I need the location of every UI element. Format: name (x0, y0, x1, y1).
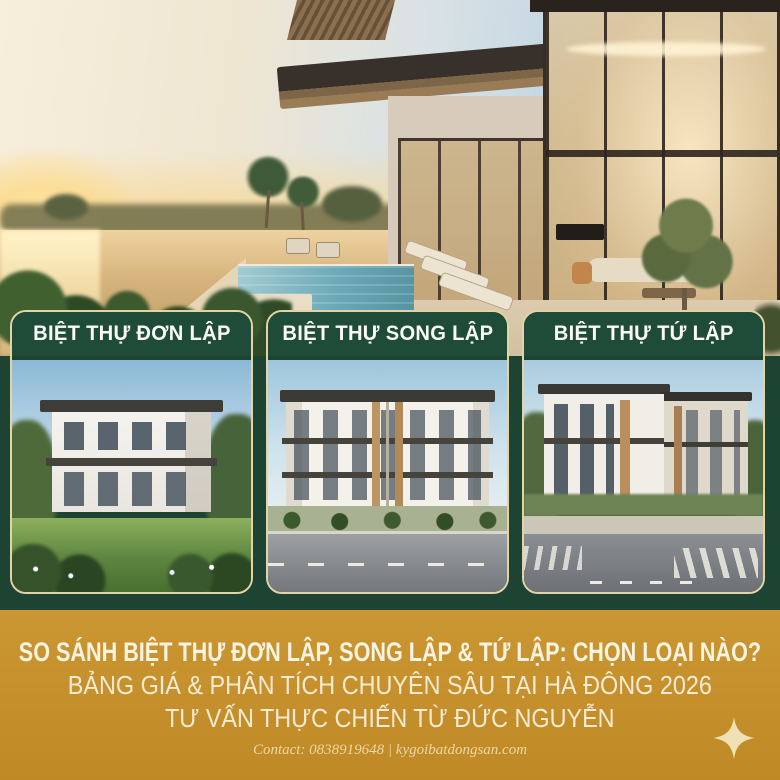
card-biet-thu-song-lap: BIỆT THỰ SONG LẬP (266, 310, 509, 594)
floor-slab (544, 438, 664, 444)
interior-armchair (572, 262, 592, 284)
card-biet-thu-tu-lap: BIỆT THỰ TỨ LẬP (522, 310, 765, 594)
pool-chair (286, 238, 310, 254)
card-photo-quad-villa (524, 360, 763, 592)
roof-slats (287, 0, 395, 40)
pool-chair (316, 242, 340, 258)
wood-accent (372, 402, 380, 508)
banner-title: SO SÁNH BIỆT THỰ ĐƠN LẬP, SONG LẬP & TỨ … (19, 636, 761, 669)
crosswalk (524, 546, 582, 570)
floor-slab (46, 458, 217, 466)
interior-ceiling-light (566, 42, 766, 56)
villa-windows (554, 404, 614, 498)
card-photo-duplex-villa (268, 360, 507, 592)
road-markings (590, 581, 700, 584)
road-markings (268, 563, 507, 566)
interior-tv (556, 224, 604, 240)
hero-photo (0, 0, 780, 356)
villa-windows (64, 422, 199, 450)
crosswalk (674, 548, 758, 578)
villa-roof (660, 392, 752, 401)
tree-blob (44, 194, 88, 220)
villa-windows (686, 410, 740, 496)
curb (268, 531, 507, 534)
card-photo-detached-villa (12, 360, 251, 592)
tree-blob (322, 186, 382, 222)
card-header: BIỆT THỰ SONG LẬP (268, 312, 507, 360)
wood-accent (620, 400, 630, 504)
villa-roof (538, 384, 670, 394)
flowers (18, 552, 238, 586)
card-label: BIỆT THỰ ĐƠN LẬP (33, 322, 231, 346)
road (268, 532, 507, 592)
villa-windows (64, 472, 199, 506)
banner: SO SÁNH BIỆT THỰ ĐƠN LẬP, SONG LẬP & TỨ … (0, 610, 780, 780)
villa-roof-slab (530, 0, 780, 12)
sparkle-icon (713, 714, 755, 762)
villa-roof (280, 390, 495, 402)
wood-accent (674, 406, 682, 504)
card-biet-thu-don-lap: BIỆT THỰ ĐƠN LẬP (10, 310, 253, 594)
card-label: BIỆT THỰ SONG LẬP (282, 322, 493, 346)
card-header: BIỆT THỰ TỨ LẬP (524, 312, 763, 360)
hedge (524, 494, 763, 516)
sidewalk (524, 516, 763, 534)
contact-line: Contact: 0838919648 | kygoibatdongsan.co… (253, 742, 527, 759)
villa-roof (40, 400, 223, 412)
wood-accent (395, 402, 403, 508)
front-yard-hedge (268, 506, 507, 532)
card-label: BIỆT THỰ TỨ LẬP (553, 322, 733, 346)
card-header: BIỆT THỰ ĐƠN LẬP (12, 312, 251, 360)
banner-subtitle-2: TƯ VẤN THỰC CHIẾN TỪ ĐỨC NGUYỄN (165, 702, 615, 735)
duplex-divider (386, 402, 389, 508)
banner-subtitle-1: BẢNG GIÁ & PHÂN TÍCH CHUYÊN SÂU TẠI HÀ Đ… (68, 669, 712, 702)
real-estate-poster: BIỆT THỰ ĐƠN LẬP BIỆT THỰ SONG LẬP (0, 0, 780, 780)
